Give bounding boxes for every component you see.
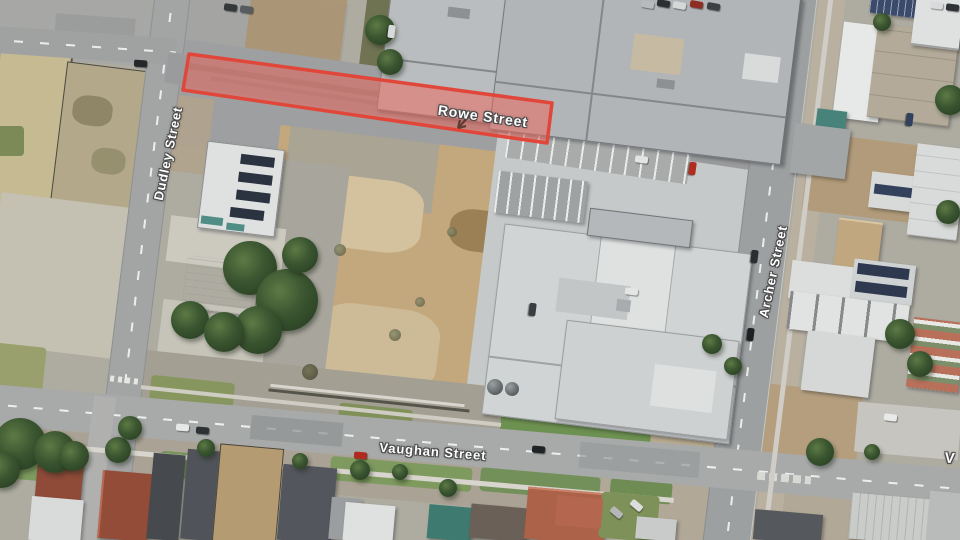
roof-seam (496, 81, 786, 119)
car (946, 3, 960, 12)
scrub-patch (90, 146, 127, 176)
water-tank (505, 382, 519, 396)
building-roof (801, 330, 876, 398)
car (884, 413, 898, 422)
roof-vent-teal (226, 223, 245, 232)
tree (377, 49, 403, 75)
tree (197, 439, 215, 457)
car (905, 113, 914, 127)
scrub-bush (302, 364, 318, 380)
solar-panel-row (857, 263, 910, 280)
roof-seam (585, 0, 607, 140)
building-sheds (789, 123, 851, 179)
solar-panel-row (240, 154, 275, 168)
tree (105, 437, 131, 463)
building-solar-roof (197, 141, 285, 238)
solar-panel-row (855, 281, 908, 298)
building-hip-roof-dark (753, 509, 823, 540)
road-patch (250, 415, 344, 447)
street-label-vaughan-partial: V (941, 449, 958, 467)
house-brown-hip-roof (469, 504, 530, 540)
car (930, 1, 944, 10)
scrub-patch (71, 94, 114, 129)
aerial-map-viewport[interactable]: Dudley Street Rowe Street Archer Street … (0, 0, 960, 540)
car (196, 426, 210, 434)
tree (936, 200, 960, 224)
tree (864, 444, 880, 460)
car (354, 451, 368, 459)
car (134, 60, 147, 68)
tree (118, 416, 142, 440)
tree (806, 438, 834, 466)
roof-white-section (650, 364, 717, 413)
tree (392, 464, 408, 480)
rooftop-unit (656, 78, 675, 89)
solar-panel-row (874, 184, 915, 199)
tree (907, 351, 933, 377)
car (532, 445, 546, 453)
house-red-hip-roof (97, 470, 153, 540)
tree (282, 237, 318, 273)
red-paved-court (555, 495, 603, 529)
scrub-bush (415, 297, 425, 307)
vacant-dirt-lot (212, 443, 284, 540)
roof-vent-teal (201, 215, 224, 226)
tree (873, 13, 891, 31)
grass-patch (0, 126, 24, 156)
water-tank (487, 379, 503, 395)
roof-tan-patch (630, 33, 684, 75)
house-white-roof (28, 496, 84, 540)
tree (724, 357, 742, 375)
house-white-roof (342, 502, 395, 540)
tree (59, 441, 89, 471)
car (625, 287, 639, 296)
scrub-bush (334, 244, 346, 256)
tree (935, 85, 960, 115)
road-centerline (0, 38, 176, 53)
rooftop-unit (742, 53, 781, 83)
garage-white-roof (635, 516, 677, 540)
solar-panel-row (230, 207, 265, 221)
house-teal-roof (427, 504, 474, 540)
solar-panel-row (236, 190, 271, 204)
road-patch (579, 442, 701, 478)
rooftop-unit (447, 7, 470, 20)
scrub-bush (389, 329, 401, 341)
building-shed-roof (926, 491, 960, 540)
house-dark-hip-roof (146, 453, 185, 540)
rooftop-unit (616, 299, 631, 313)
tree (292, 453, 308, 469)
tree (439, 479, 457, 497)
tree (885, 319, 915, 349)
car (176, 423, 190, 431)
scrub-bush (447, 227, 457, 237)
solar-panel-row (238, 172, 273, 186)
tree (350, 460, 370, 480)
tree (702, 334, 722, 354)
building-shed-roof (848, 493, 934, 540)
tree (204, 312, 244, 352)
